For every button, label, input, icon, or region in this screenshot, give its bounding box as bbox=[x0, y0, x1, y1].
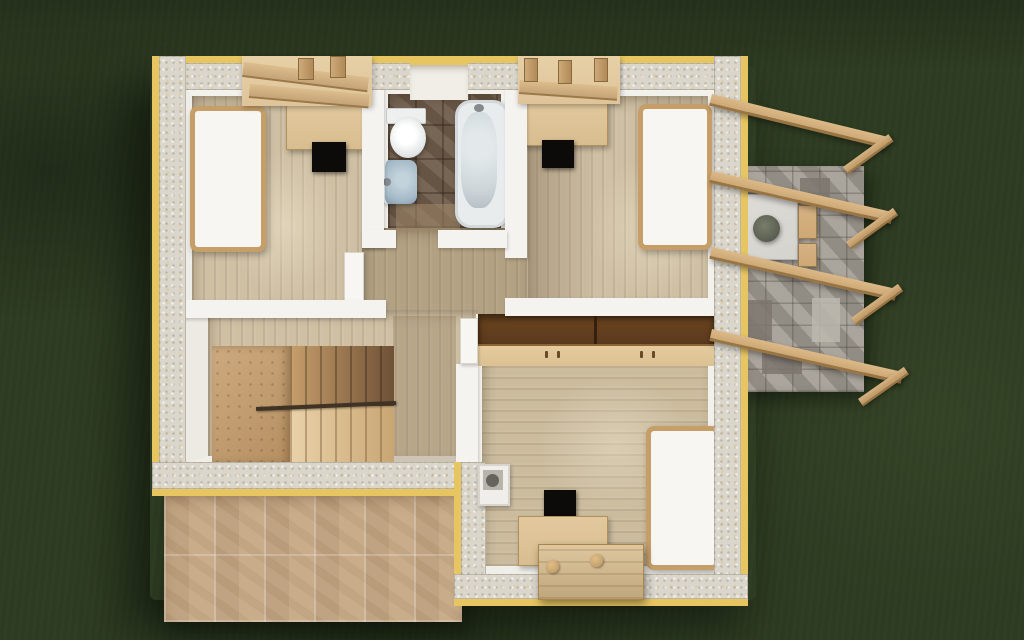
wall-bedroom1-hall bbox=[362, 86, 384, 248]
stone-tile bbox=[812, 298, 840, 342]
chair-top-left bbox=[312, 142, 346, 172]
chair-top-right bbox=[542, 140, 574, 168]
roof-post bbox=[524, 58, 538, 82]
wall-bedroom2-bedroom3 bbox=[505, 298, 716, 316]
chair-bottom-right bbox=[544, 490, 576, 518]
tiled-patio bbox=[164, 492, 462, 622]
basin-faucet bbox=[383, 178, 391, 186]
open-door-bedroom1 bbox=[344, 252, 364, 302]
tub-faucet bbox=[474, 104, 484, 112]
roof-post bbox=[594, 58, 608, 82]
staircase-lower-flight bbox=[290, 346, 394, 406]
roof-post bbox=[558, 60, 572, 84]
stone-tile bbox=[746, 300, 772, 340]
staircase-upper-panel bbox=[212, 346, 290, 464]
toilet-bowl bbox=[390, 118, 426, 158]
wooden-stool bbox=[798, 243, 817, 267]
potted-plant bbox=[753, 215, 780, 242]
bed-top-right bbox=[638, 104, 712, 250]
wardrobe-divider bbox=[594, 314, 597, 344]
wardrobe-handle bbox=[652, 351, 655, 358]
exterior-wall-bottom-left-wing bbox=[152, 462, 470, 496]
open-door-bedroom3 bbox=[460, 318, 478, 364]
wardrobe-doors bbox=[478, 344, 714, 366]
wardrobe-handle bbox=[640, 351, 643, 358]
wooden-stool bbox=[798, 205, 817, 239]
stoop-post-cap bbox=[546, 560, 559, 573]
wall-bedroom1-stairroom bbox=[152, 300, 386, 318]
bed-bottom-right bbox=[646, 426, 720, 570]
wall-hall-bedroom3 bbox=[456, 364, 478, 464]
staircase-upper-flight bbox=[290, 406, 394, 464]
window-niche bbox=[410, 58, 468, 100]
roof-post bbox=[330, 56, 346, 78]
bathtub-basin bbox=[461, 112, 497, 208]
wardrobe-handle bbox=[557, 351, 560, 358]
floorplan-render-scene bbox=[0, 0, 1024, 640]
stoop-post-cap bbox=[590, 554, 603, 567]
wall-bathroom-right bbox=[505, 86, 527, 258]
chimney-opening bbox=[486, 474, 499, 487]
exterior-wall-left bbox=[152, 56, 186, 496]
wardrobe-handle bbox=[545, 351, 548, 358]
wall-bathroom-bottom-left bbox=[362, 230, 396, 248]
wall-bathroom-bottom-right bbox=[438, 230, 507, 248]
roof-post bbox=[298, 58, 314, 80]
bed-top-left bbox=[190, 106, 266, 252]
